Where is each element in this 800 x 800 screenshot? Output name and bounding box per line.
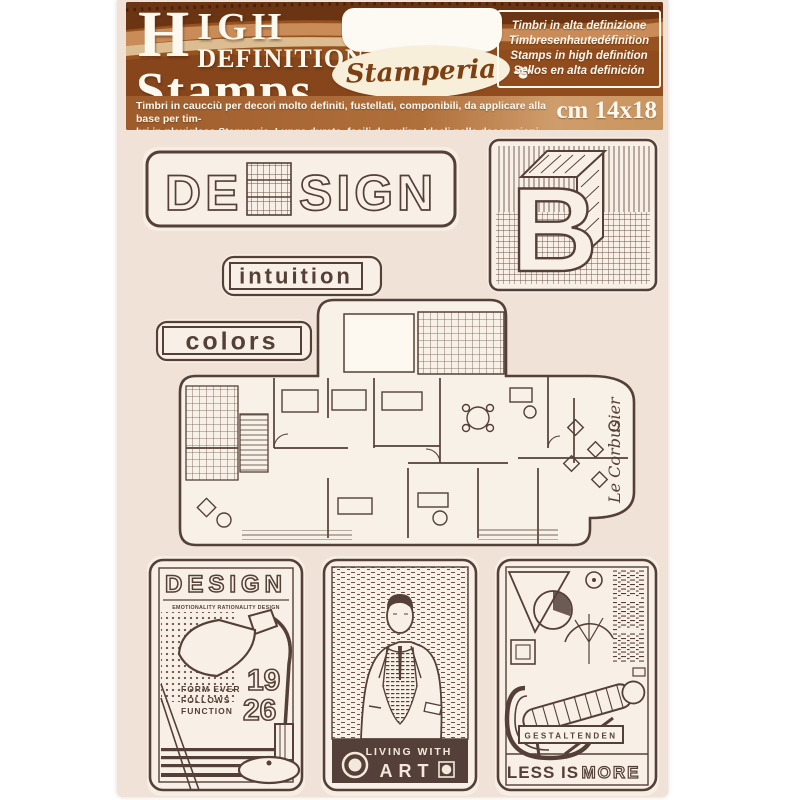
stamp-floorplan: Le Corbusier xyxy=(178,298,636,548)
title-high: HIGH xyxy=(197,6,286,48)
chair-text-block xyxy=(613,570,645,662)
lamp-title: DESIGN xyxy=(165,571,287,598)
translation-es: Sellos en alta definición xyxy=(499,64,659,79)
less-is-text: LESS IS xyxy=(507,763,579,782)
stamp-design-word: DE SIGN xyxy=(143,147,459,231)
stamp-poster-chair: GESTALTENDEN LESS IS MORE xyxy=(495,556,659,796)
lamp-year-19: 19 xyxy=(247,664,280,697)
size-label: cm 14x18 xyxy=(556,97,657,125)
badge-label: GESTALTENDEN xyxy=(525,732,618,741)
art-circle-right xyxy=(442,765,452,775)
floorplan-signature: Le Corbusier xyxy=(605,396,624,504)
brand-name: Stamperia xyxy=(345,54,496,89)
stamp-package: HIGH DEFINITION Stamps Stamperia Timbri … xyxy=(117,0,668,797)
more-text: MORE xyxy=(582,763,641,782)
design-text-sign: SIGN xyxy=(299,165,437,221)
description-band: Timbri in caucciù per decori molto defin… xyxy=(126,96,663,130)
art-banner-main: ART xyxy=(380,761,435,781)
floorplan-top-rooms xyxy=(344,312,504,374)
translation-fr: Timbresenhautedéfinition xyxy=(499,34,659,49)
stamp-letter-b: B xyxy=(487,137,659,293)
package-header: HIGH DEFINITION Stamps Stamperia Timbri … xyxy=(126,2,663,130)
art-circle-left-dot xyxy=(349,759,362,772)
lamp-year-26: 26 xyxy=(243,694,276,727)
gestaltenden-badge: GESTALTENDEN xyxy=(519,726,623,743)
translation-it: Timbri in alta definizione xyxy=(499,19,659,34)
stamp-poster-lamp: 19 26 FORM EVER FOLLOWS FUNCTION DESIGN … xyxy=(147,556,305,796)
stamp-intuition: intuition xyxy=(221,254,383,298)
art-banner: LIVING WITH ART xyxy=(332,739,468,783)
description-text: Timbri in caucciù per decori molto defin… xyxy=(136,100,554,130)
product-photo: HIGH DEFINITION Stamps Stamperia Timbri … xyxy=(0,0,800,800)
description-line1: Timbri in caucciù per decori molto defin… xyxy=(136,100,554,126)
lamp-slogan-line2: FOLLOWS xyxy=(181,695,231,705)
description-line2: bri in plexiglass Stamperia. Lunga durat… xyxy=(136,126,554,130)
translation-en: Stamps in high definition xyxy=(499,49,659,64)
lamp-subtitle: EMOTIONALITY RATIONALITY DESIGN xyxy=(172,605,280,611)
design-text-de: DE xyxy=(165,165,242,221)
art-banner-top: LIVING WITH xyxy=(366,746,453,758)
lamp-slogan-line3: FUNCTION xyxy=(181,706,233,716)
stamp-poster-art: LIVING WITH ART xyxy=(321,556,479,796)
b-letter: B xyxy=(511,163,598,293)
design-grid-block xyxy=(247,163,291,215)
lamp-slogan-line1: FORM EVER xyxy=(181,684,241,694)
intuition-label: intuition xyxy=(239,264,353,289)
translations-box: Timbri in alta definizione Timbresenhaut… xyxy=(497,10,661,88)
